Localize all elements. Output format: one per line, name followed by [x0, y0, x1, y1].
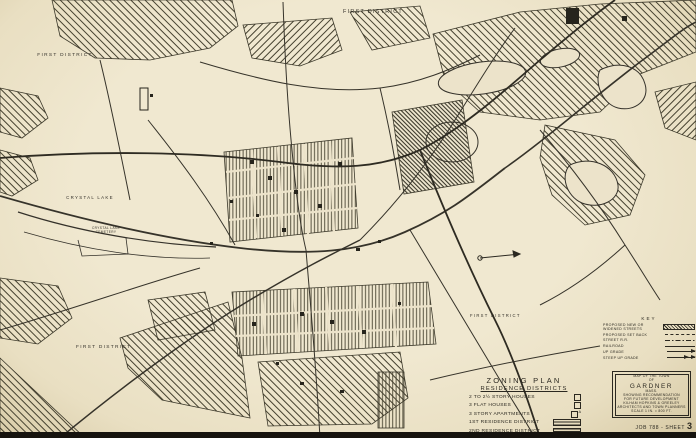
cemetery-label-line2: CEMETERY	[86, 231, 126, 235]
key-title: KEY	[603, 316, 695, 321]
zoning-plan-legend: ZONING PLAN RESIDENCE DISTRICTS 2 TO 2½ …	[464, 376, 584, 435]
key-item-steep-up-grade: STEEP UP GRADE	[603, 356, 695, 360]
title-line: SCALE 1 IN. = 800 FT.	[631, 410, 672, 414]
key-item-label: PROPOSED SET BACK	[603, 333, 655, 337]
zoning-map-page: FIRST DISTRICT FIRST DISTRICT FIRST DIST…	[0, 0, 696, 438]
legend-subtitle: RESIDENCE DISTRICTS	[464, 386, 584, 392]
label-first-district-right: FIRST DISTRICT	[470, 313, 520, 318]
key-item-label: RAILROAD	[603, 344, 655, 348]
label-first-district-lower-left: FIRST DISTRICT	[76, 345, 130, 350]
arrow-symbol	[667, 351, 695, 352]
crystal-lake-shoreline	[18, 212, 216, 258]
legend-item-flat-houses: 3 FLAT HOUSES	[464, 402, 584, 409]
legend-item-1st-residence: 1ST RESIDENCE DISTRICT	[464, 419, 584, 426]
photo-edge	[0, 432, 696, 438]
sheet-label: JOB 788 - SHEET 3	[598, 421, 692, 431]
double-arrow-symbol	[667, 357, 695, 358]
legend-item-label: 3 STORY APARTMENTS	[469, 412, 530, 417]
key-item-set-back: PROPOSED SET BACK	[603, 333, 695, 337]
open-square-symbol	[571, 411, 578, 418]
north-arrow	[478, 251, 520, 260]
label-first-district-top: FIRST DISTRICT	[336, 9, 410, 15]
title-block-inner: MAP OF THE TOWN OF GARDNER MASS. SHOWING…	[615, 374, 689, 416]
key-item-up-grade: UP GRADE	[603, 350, 695, 354]
sheet-label-prefix: JOB 788 - SHEET	[636, 425, 685, 431]
map-key: KEY PROPOSED NEW OR WIDENED STREETS PROP…	[603, 316, 695, 360]
map-hatched-regions	[0, 0, 696, 438]
key-item-proposed-streets: PROPOSED NEW OR WIDENED STREETS	[603, 323, 695, 331]
label-crystal-lake-cemetery: CRYSTAL LAKE CEMETERY	[86, 227, 126, 234]
legend-item-label: 3 FLAT HOUSES	[469, 403, 511, 408]
sheet-number: 3	[687, 421, 692, 431]
legend-item-2-story-houses: 2 TO 2½ STORY HOUSES	[464, 394, 584, 401]
key-item-street-rr: STREET R.R.	[603, 338, 695, 342]
open-square-a-symbol: A	[571, 411, 581, 418]
striped-bar-light-symbol	[553, 419, 581, 426]
legend-item-label: 1ST RESIDENCE DISTRICT	[469, 420, 539, 425]
key-item-label: STEEP UP GRADE	[603, 356, 655, 360]
open-square-symbol	[574, 402, 581, 409]
label-first-district-upper-left: FIRST DISTRICT	[36, 53, 94, 58]
key-item-railroad: RAILROAD	[603, 344, 695, 348]
open-square-symbol	[574, 394, 581, 401]
dash-dot-line-symbol	[665, 340, 695, 341]
legend-title: ZONING PLAN	[464, 376, 584, 385]
solid-line-symbol	[665, 346, 695, 347]
symbol-superscript: A	[579, 410, 581, 414]
dashed-line-symbol	[665, 334, 695, 335]
title-block: MAP OF THE TOWN OF GARDNER MASS. SHOWING…	[612, 371, 691, 418]
map-artwork	[0, 0, 696, 438]
hatched-bar-symbol	[663, 324, 695, 330]
key-item-label: STREET R.R.	[603, 338, 655, 342]
key-item-label: PROPOSED NEW OR WIDENED STREETS	[603, 323, 655, 331]
label-crystal-lake: CRYSTAL LAKE	[64, 195, 116, 200]
legend-item-label: 2 TO 2½ STORY HOUSES	[469, 395, 535, 400]
legend-item-apartments: 3 STORY APARTMENTS A	[464, 411, 584, 418]
key-item-label: UP GRADE	[603, 350, 655, 354]
